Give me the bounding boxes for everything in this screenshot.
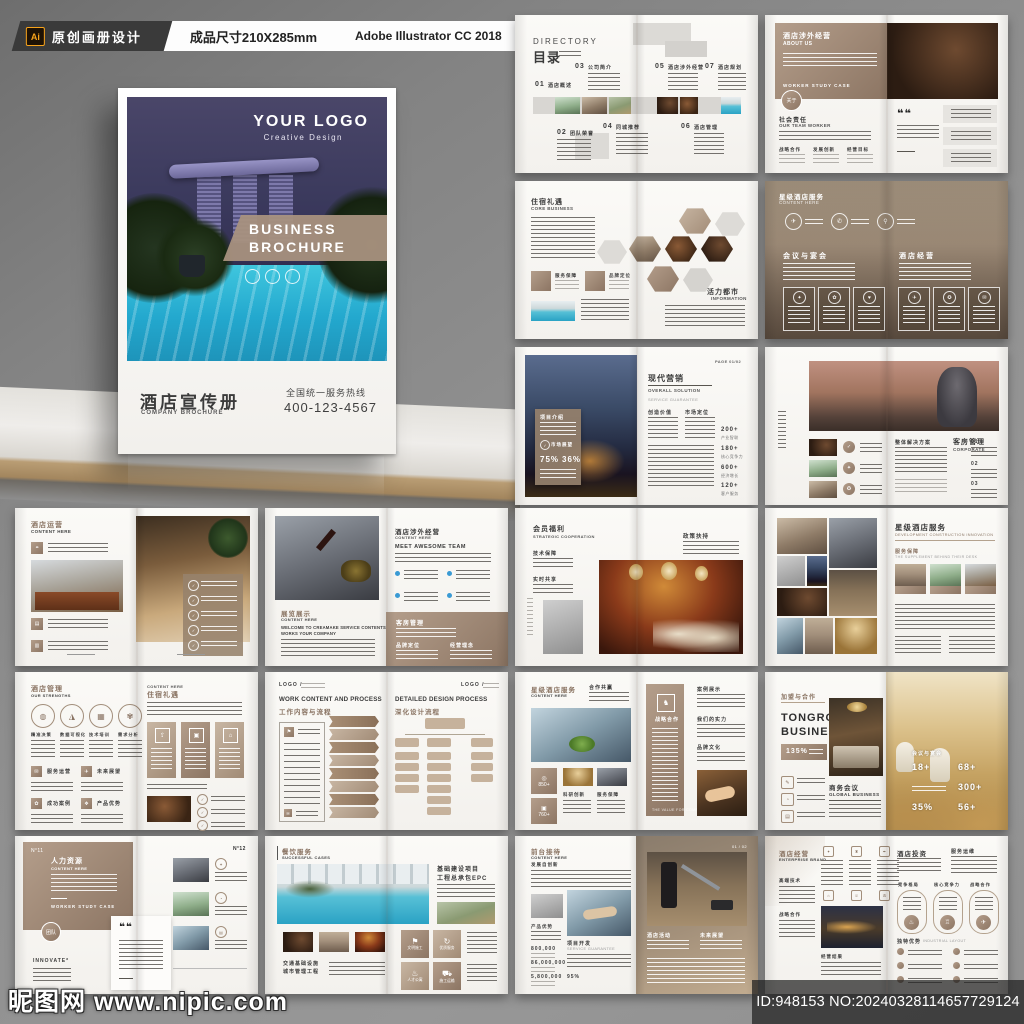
- text-lines: [895, 604, 995, 630]
- operations-title-en: CONTENT HERE: [31, 529, 71, 534]
- text-lines: [404, 592, 438, 604]
- text-lines: [860, 464, 882, 473]
- mini-icon: ♕: [851, 890, 862, 901]
- icon-square: ⚭: [31, 542, 43, 554]
- block-label-2: 经营理念: [450, 642, 474, 649]
- cover-banner: BUSINESS BROCHURE: [223, 215, 387, 261]
- catering-foot-2: 城市管理工程: [283, 968, 319, 975]
- tongro-icon: ◔: [781, 793, 794, 806]
- text-lines: [648, 417, 678, 439]
- catering-title-en: SUCCESSFUL CASES: [282, 855, 330, 860]
- invest-right-cn: 酒店投资: [897, 848, 927, 858]
- catering-foot-1: 交通基础设施: [283, 960, 319, 967]
- cover-title-en: COMPANY BROCHURE: [141, 410, 223, 416]
- membership-sub1: 技术保障: [533, 550, 557, 557]
- overlay-icon-circle: ⚲: [877, 213, 894, 230]
- strength-circle-label: 数据可视化: [60, 732, 86, 738]
- tongro-stat-band: 135%: [781, 744, 827, 760]
- badge-software: Adobe Illustrator CC 2018: [330, 21, 527, 51]
- cover-hotline-label: 全国统一服务热线: [286, 386, 366, 399]
- list-num: 03: [971, 481, 979, 487]
- mini-icon: ✦: [823, 846, 834, 857]
- stat-label: 核心竞争力: [721, 454, 743, 460]
- thumb-icon: ✦: [843, 462, 855, 474]
- text-lines: [971, 447, 997, 456]
- reception-photo-vacuum: [647, 852, 747, 926]
- hexagon: [597, 239, 627, 265]
- strength-circle: ◮: [60, 704, 84, 728]
- offer-card: ⌂: [215, 722, 244, 778]
- text-lines: [60, 740, 84, 758]
- offer-card: ▣: [181, 722, 210, 778]
- flow-node: [471, 738, 493, 747]
- text-lines: [147, 784, 207, 792]
- cover-photo: YOUR LOGO Creative Design BUSINESS BROCH…: [127, 97, 387, 361]
- toc-label: 同城推荐: [616, 124, 640, 131]
- strength-circle: ◍: [31, 704, 55, 728]
- cover-logo-sub: Creative Design: [264, 133, 343, 142]
- text-lines: [829, 804, 881, 820]
- exhibition-right-en: CONTENT HERE: [395, 535, 431, 540]
- caption-band: [930, 586, 961, 594]
- flow-node: [395, 785, 419, 793]
- strengths-title-en: OUR STRENGTHS: [31, 693, 71, 698]
- salad-plate: [569, 736, 595, 752]
- text-lines: [559, 51, 581, 59]
- star-sub-en: THE SUPPLEMENT BEHIND THEIR DESK: [895, 555, 977, 559]
- adv-bullet: [897, 948, 904, 955]
- catering-thumb: [319, 932, 349, 952]
- overlay-icon-circle: ✈: [785, 213, 802, 230]
- coop-right-3: 品牌文化: [697, 744, 721, 751]
- hexagon-photo: [701, 235, 733, 263]
- collage-photo: [807, 556, 827, 586]
- flow-node: [471, 763, 493, 771]
- offer-card: ⇪: [147, 722, 176, 778]
- membership-right: 政策扶持: [683, 532, 709, 540]
- membership-photo-hall: [543, 600, 583, 654]
- toc-num: 02: [557, 129, 567, 136]
- stat: 300+: [958, 782, 982, 792]
- text-lines: [951, 131, 991, 141]
- text-lines: [48, 543, 108, 553]
- text-lines: [33, 968, 71, 982]
- speaker-figure: [937, 367, 977, 427]
- tongro-title-1: TONGRO: [781, 712, 835, 724]
- core-square-label: 服务保障: [555, 273, 577, 279]
- lounge-chairs: [653, 616, 739, 652]
- strength-square-label: 成功案例: [47, 800, 71, 807]
- spread-directory: DIRECTORY 目录 01 酒店概述 02 团队荣誉 03 公司简介 04 …: [515, 15, 758, 173]
- text-lines: [665, 305, 745, 327]
- text-lines: [849, 860, 871, 886]
- flow-node: [395, 763, 419, 771]
- text-lines: [215, 940, 247, 950]
- accent-block: [665, 41, 707, 57]
- text-lines: [797, 778, 825, 785]
- hexagon-photo: [665, 235, 697, 263]
- text-lines: [467, 932, 497, 956]
- resort-lights: [827, 920, 877, 934]
- housekeeper-legs: [661, 862, 677, 908]
- epc-head-1: 基础建设项目: [437, 864, 479, 873]
- spread-about-us: 酒店涉外经营 ABOUT US WORKER STUDY CASE 关于 社会责…: [765, 15, 1008, 173]
- marketing-title-en: OVERALL SOLUTION: [648, 388, 700, 393]
- strip-photo: [609, 97, 631, 114]
- text-lines: [895, 479, 947, 495]
- text-lines: [860, 443, 882, 452]
- coop-tall-panel: ♞ 战略合作 THE VALUE FOR COMPANY: [646, 684, 684, 816]
- text-lines: [555, 280, 579, 289]
- circle-label: 战略合作: [970, 882, 991, 888]
- hr-row-photo: [173, 926, 209, 950]
- cover-icon-circle-1: [245, 269, 260, 284]
- text-lines: [609, 280, 629, 289]
- adv-bullet: [953, 962, 960, 969]
- marketing-overlay-card: 项目介绍 ✓ 市场展望 75% 36%: [535, 409, 581, 485]
- spread-star-service: 星级酒店服务 DEVELOPMENT CONSTRUCTION INNOVATI…: [765, 508, 1008, 666]
- adv-cn: 独特优势: [897, 938, 921, 945]
- strength-circle-label: 精准决策: [31, 732, 52, 738]
- text-lines: [450, 650, 492, 662]
- strip-photo: [582, 97, 607, 114]
- list-num: 01: [971, 439, 979, 445]
- toc-num: 04: [603, 123, 613, 130]
- marketing-col2: 市场定位: [685, 409, 709, 416]
- flow-connector: [405, 734, 485, 735]
- text-lines: [851, 219, 869, 224]
- text-lines: [404, 570, 438, 582]
- cover-hotline: 400-123-4567: [284, 400, 377, 415]
- stadium-card: ♖: [933, 890, 963, 934]
- collage-photo: [805, 618, 833, 654]
- hexagon: [647, 265, 679, 293]
- coop-stat-square: ▣760+: [531, 798, 557, 824]
- text-lines: [779, 920, 815, 938]
- flow-node: [427, 752, 451, 760]
- stats-overlay: 会议与宴会 18+ 68+ 300+ 35% 56+: [910, 750, 1002, 824]
- cover-logo: YOUR LOGO: [253, 113, 369, 131]
- text-lines: [456, 570, 490, 582]
- bullet-dot: [447, 571, 452, 576]
- coop-photo-lunch: [531, 708, 631, 762]
- text-lines: [281, 639, 375, 659]
- stat-75: 75%: [540, 455, 559, 464]
- text-lines: [821, 962, 881, 978]
- collage-photo: [777, 618, 803, 654]
- text-lines: [31, 782, 73, 794]
- circle-label: 核心竞争力: [934, 882, 960, 888]
- flow-node: [427, 763, 451, 771]
- stat-value: 86,000,000: [531, 960, 566, 966]
- spread-exhibition: 展览展示 CONTENT HERE WELCOME TO CREAMAKE SE…: [265, 508, 508, 666]
- coop-thumb: [597, 768, 627, 786]
- text-lines: [718, 73, 746, 93]
- coop-right-1: 案例展示: [697, 686, 721, 693]
- hr-tabs: WORKER STUDY CASE: [51, 904, 115, 909]
- hr-row-icon: ✦: [215, 858, 227, 870]
- about-col-label: 发展创新: [813, 147, 835, 153]
- spread-process: LOGO / LOGO / WORK CONTENT AND PROCESS 工…: [265, 672, 508, 830]
- logo-mark: LOGO /: [461, 682, 485, 688]
- text-lines: [783, 53, 877, 69]
- text-lines: [897, 125, 939, 141]
- toc-label: 酒店涉外经营: [668, 64, 704, 71]
- reception-title-en: CONTENT HERE: [531, 855, 567, 860]
- mini-icon: ✒: [879, 846, 890, 857]
- core-right-en: INFORMATION: [711, 296, 747, 301]
- flow-node: [427, 807, 451, 815]
- tongro-icon: ✎: [781, 776, 794, 789]
- text-lines: [531, 967, 555, 972]
- investment-caption: 经营结果: [821, 954, 843, 960]
- welcome-line-1: WELCOME TO CREAMAKE SERVICE CONTENTS: [281, 625, 386, 630]
- text-lines: [533, 558, 573, 570]
- hr-title-en: CONTENT HERE: [51, 866, 87, 871]
- thumb-photo: [809, 481, 837, 498]
- page-guide: PAGE 01/02: [715, 359, 741, 364]
- tongro-meeting-cn: 商务会议: [829, 782, 859, 792]
- stat-135: 135%: [786, 748, 808, 755]
- text-lines: [589, 692, 629, 702]
- text-lines: [533, 584, 573, 596]
- captioned-photo: [930, 564, 961, 586]
- flow-chevron: [329, 807, 379, 818]
- text-lines: [395, 553, 491, 565]
- rule-line: [895, 540, 995, 541]
- planter-pot: [179, 255, 205, 277]
- text-lines: [48, 619, 108, 629]
- strengths-photo: [147, 796, 191, 822]
- flow-node: [427, 738, 451, 747]
- footer-line: [177, 654, 205, 655]
- handshake-shape: [582, 906, 617, 921]
- text-lines: [813, 154, 839, 166]
- flow-node-root: [425, 718, 465, 729]
- rule-line: [648, 385, 712, 386]
- overlay-card: ♥: [853, 287, 885, 331]
- right-title-en: CONTENT HERE: [147, 684, 183, 689]
- bed: [833, 746, 879, 768]
- overlay-card: ✦: [783, 287, 815, 331]
- flow-chevron: [329, 794, 379, 805]
- flow-node: [395, 752, 419, 760]
- reception-sub: 发展自创新: [531, 862, 559, 868]
- board-table: [35, 592, 119, 610]
- bullet-circle: ✓: [197, 794, 208, 805]
- text-lines: [647, 940, 689, 952]
- text-lines: [847, 154, 873, 166]
- strength-square: ✿: [31, 798, 42, 809]
- operations-overlay-card: ✓ ✓ ✓ ✓ ✓: [183, 574, 243, 656]
- strip-photo: [680, 97, 698, 114]
- about-tabs: WORKER STUDY CASE: [783, 83, 851, 88]
- process-right-cn: 深化设计流程: [395, 706, 440, 716]
- investment-photo-resort: [821, 906, 883, 948]
- text-lines: [700, 940, 742, 952]
- coop-stat-square: ◎850+: [531, 768, 557, 794]
- text-lines: [668, 73, 698, 93]
- card-sub: 市场展望: [551, 442, 573, 448]
- overlay-card: ✿: [818, 287, 850, 331]
- text-lines: [951, 109, 991, 119]
- margin-ticks: [527, 598, 533, 638]
- spread-meeting-overlay: 星级酒店服务 CONTENT HERE ✈ ✆ ⚲ 会议与宴会 酒店经营 ✦ ✿…: [765, 181, 1008, 339]
- reception-right-page: 01 / 02 酒店活动 未来展望: [636, 836, 758, 994]
- text-lines: [616, 133, 648, 157]
- captioned-photo: [895, 564, 926, 586]
- gold-pillow: [341, 560, 371, 582]
- book-reflection: [128, 448, 384, 499]
- text-lines: [531, 953, 555, 958]
- membership-title-en: STRATEGIC COOPERATION: [533, 534, 595, 539]
- text-lines: [951, 153, 991, 163]
- catering-photo-pool: [277, 864, 429, 924]
- membership-photo-lounge: [599, 560, 743, 654]
- text-lines: [951, 856, 997, 876]
- thumb-icon: ✓: [843, 441, 855, 453]
- exhibition-photo-wine: [275, 516, 379, 600]
- text-lines: [531, 981, 555, 986]
- pool-plants: [285, 880, 335, 898]
- overlay-card: ✈: [898, 287, 930, 331]
- flow-chevron: [329, 755, 379, 766]
- overlay-title-en: CONTENT HERE: [779, 200, 819, 205]
- strength-square-label: 服务运营: [47, 768, 71, 775]
- captioned-photo: [965, 564, 996, 586]
- text-lines: [895, 636, 941, 656]
- strength-square: ✉: [31, 766, 42, 777]
- flow-node: [427, 785, 451, 793]
- about-header-block: 酒店涉外经营 ABOUT US WORKER STUDY CASE: [775, 23, 887, 99]
- text-lines: [118, 740, 142, 758]
- watermark-id-text: ID:948153 NO:20240328114657729124: [756, 994, 1020, 1010]
- text-lines: [581, 299, 629, 323]
- process-legend-box: ⚑ ✉: [279, 722, 325, 822]
- overlay-title: 会议与宴会: [912, 750, 942, 757]
- cover-banner-line1: BUSINESS: [249, 221, 337, 237]
- text-lines: [779, 886, 815, 904]
- text-lines: [396, 650, 438, 662]
- bullet-circle: ✓: [197, 820, 208, 831]
- tongro-icon: ▤: [781, 810, 794, 823]
- text-lines: [697, 694, 745, 710]
- corporate-head: 整体解决方案: [895, 439, 931, 446]
- showcase-canvas: Ai 原创画册设计 成品尺寸210X285mm Adobe Illustrato…: [0, 0, 1024, 1024]
- footer-line: [67, 654, 95, 655]
- text-lines: [31, 814, 73, 824]
- plant: [208, 518, 248, 558]
- text-lines: [437, 884, 495, 898]
- thumb-photo: [809, 460, 837, 477]
- stat-value: 200+: [721, 427, 739, 433]
- exhibition-title-en: CONTENT HERE: [281, 617, 317, 622]
- flow-chevron: [329, 716, 379, 727]
- overlay-head-1: 会议与宴会: [783, 251, 828, 261]
- wine-bottle: [316, 529, 336, 551]
- collage-photo: [835, 618, 877, 654]
- collage-photo: [777, 588, 827, 616]
- strip-photo: [555, 97, 580, 114]
- core-square-label: 品牌定位: [609, 273, 631, 279]
- catering-thumb: [283, 932, 313, 952]
- about-section-en: OUR TEAM WORKER: [779, 123, 831, 128]
- text-lines: [31, 740, 55, 758]
- right-label-2: 未来展望: [700, 932, 724, 939]
- dev-cn: 项目开发: [567, 940, 591, 947]
- coop-label-2: 服务保障: [597, 792, 619, 798]
- text-lines: [329, 962, 385, 976]
- text-lines: [694, 133, 724, 157]
- text-lines: [683, 541, 739, 555]
- spread-membership: 会员福利 STRATEGIC COOPERATION 技术保障 实时共享 政策扶…: [515, 508, 758, 666]
- directory-title-en: DIRECTORY: [533, 37, 598, 46]
- circle-label: 竞争格局: [898, 882, 919, 888]
- text-lines: [211, 796, 245, 804]
- text-lines: [81, 782, 123, 794]
- coop-thumb: [563, 768, 593, 786]
- logo-mark: LOGO /: [279, 682, 303, 688]
- overlay-card: ✉: [968, 287, 1000, 331]
- flow-chevron: [329, 781, 379, 792]
- text-lines: [860, 485, 882, 494]
- stat: 68+: [958, 762, 976, 772]
- toc-num: 06: [681, 123, 691, 130]
- spread-cooperation: 星级酒店服务 CONTENT HERE 合作共赢 ◎850+ ▣760+ 科研创…: [515, 672, 758, 830]
- star-title-cn: 星级酒店服务: [895, 522, 946, 533]
- spread-core-business: 住宿礼遇 CORE BUSINESS 服务保障 品牌定位 活力都市 INFORM…: [515, 181, 758, 339]
- flow-node: [427, 774, 451, 782]
- text-lines: [897, 219, 915, 224]
- reception-adv: 产品优势: [531, 924, 553, 930]
- corporate-title-cn: 客房管理: [953, 437, 985, 447]
- spread-strengths: 酒店管理 OUR STRENGTHS ◍ 精准决策 ◮ 数据可视化 ▦ 技术培训…: [15, 672, 258, 830]
- spread-investment: 酒店经营 ENTERPRISE BRAND ✦ ♜ ✒ ⌂ ♕ ✇ 高端技术 战…: [765, 836, 1008, 994]
- badge-size: 成品尺寸210X285mm: [164, 21, 345, 51]
- star-title-en: DEVELOPMENT CONSTRUCTION INNOVATION: [895, 533, 993, 537]
- hr-title-cn: 人力资源: [51, 856, 83, 866]
- epc-head-2: 工程总承包EPC: [437, 873, 487, 882]
- block-label-1: 品牌定位: [396, 642, 420, 649]
- text-lines: [648, 445, 714, 489]
- welcome-line-2: WORKS YOUR COMPANY: [281, 631, 336, 636]
- bullet-dot: [395, 571, 400, 576]
- flow-node: [395, 774, 419, 782]
- block-title: 客房管理: [396, 618, 424, 627]
- text-lines: [567, 954, 631, 970]
- collage-photo: [777, 556, 805, 586]
- text-lines: [652, 728, 678, 804]
- text-lines: [899, 263, 971, 281]
- membership-title-cn: 会员福利: [533, 524, 565, 534]
- watermark-id-band: ID:948153 NO:20240328114657729124: [752, 980, 1024, 1024]
- investment-left-2: 战略合作: [779, 912, 801, 918]
- rule-line: [781, 702, 825, 703]
- text-lines: [531, 870, 631, 888]
- panel-label: 战略合作: [655, 716, 679, 723]
- text-lines: [540, 469, 576, 479]
- toc-num: 05: [655, 63, 665, 70]
- list-num: 02: [971, 461, 979, 467]
- page-num: 01 / 02: [732, 844, 747, 849]
- ai-icon: Ai: [26, 27, 45, 46]
- title-bracket: [277, 846, 278, 860]
- bullet-dot: [395, 593, 400, 598]
- stat-label: 经济增长: [721, 473, 739, 479]
- toc-num: 01: [535, 81, 545, 88]
- process-left-en: WORK CONTENT AND PROCESS: [279, 696, 382, 703]
- margin-ticks: [778, 411, 786, 451]
